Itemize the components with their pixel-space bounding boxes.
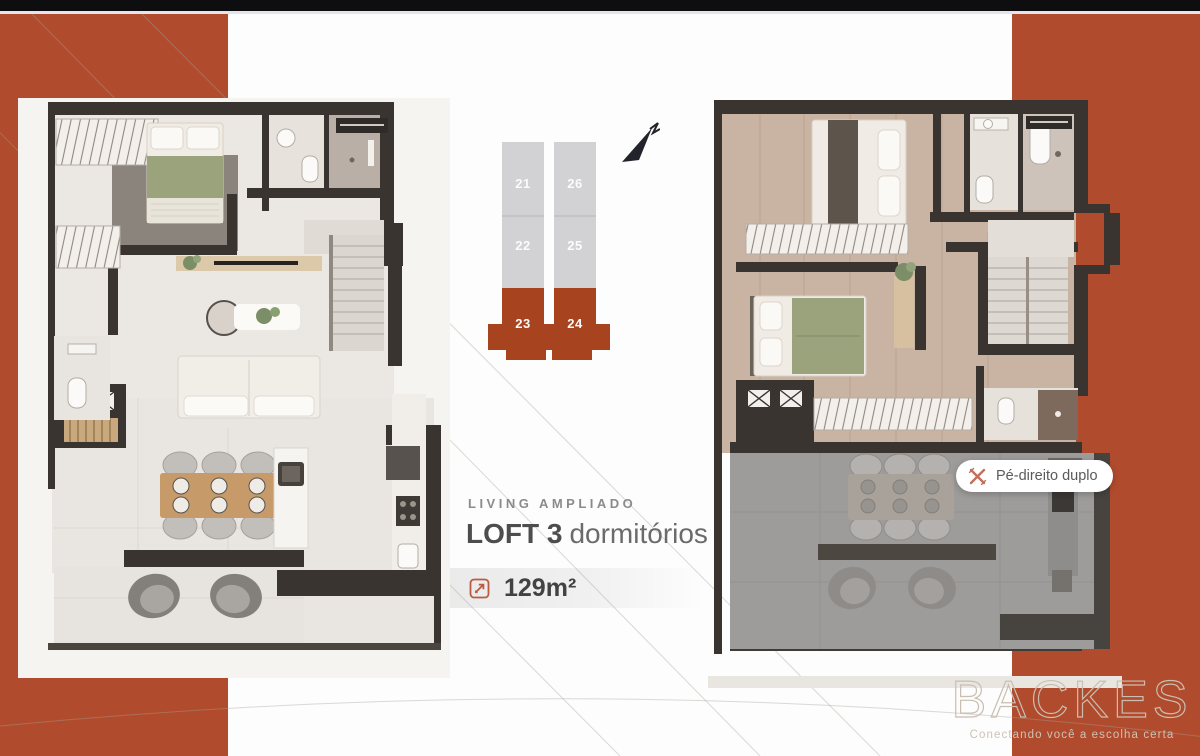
area-icon bbox=[468, 577, 491, 600]
bed-upper-2 bbox=[750, 296, 866, 376]
bed-upper-1 bbox=[812, 120, 906, 228]
stairs-upper bbox=[988, 220, 1074, 344]
dining-lower bbox=[160, 452, 278, 539]
unit-key-diagram: 21 22 23 26 25 24 bbox=[478, 138, 620, 360]
north-arrow-icon bbox=[614, 120, 660, 166]
double-height-icon bbox=[967, 466, 988, 487]
area-bar: 129m² bbox=[443, 568, 705, 608]
plan-title-rest: dormitórios bbox=[569, 518, 707, 549]
brand-tagline: Conectando você a escolha certa bbox=[948, 729, 1196, 741]
double-height-label: Pé-direito duplo bbox=[996, 468, 1098, 484]
unit-number: 26 bbox=[554, 176, 596, 191]
brand-logo: BACKES bbox=[948, 674, 1196, 726]
unit-number: 24 bbox=[554, 316, 596, 331]
area-value: 129m² bbox=[504, 574, 576, 603]
unit-number: 23 bbox=[502, 316, 544, 331]
unit-number: 21 bbox=[502, 176, 544, 191]
double-height-badge: Pé-direito duplo bbox=[956, 460, 1113, 492]
unit-number: 25 bbox=[554, 238, 596, 253]
floorplan-upper bbox=[700, 92, 1130, 692]
floorplan-lower bbox=[18, 98, 450, 678]
bed-lower bbox=[147, 123, 223, 223]
sofa-lower bbox=[178, 356, 320, 418]
plan-eyebrow: LIVING AMPLIADO bbox=[468, 496, 636, 511]
plan-title: LOFT 3dormitórios bbox=[466, 518, 708, 550]
wc-lower bbox=[54, 336, 110, 420]
brand-block: BACKES Conectando você a escolha certa bbox=[948, 674, 1196, 741]
page: 21 22 23 26 25 24 LIVING AMPLIADO LOFT 3… bbox=[0, 0, 1200, 756]
unit-key-shapes bbox=[478, 138, 620, 360]
elevator-core-upper bbox=[736, 380, 814, 442]
plan-title-strong: LOFT 3 bbox=[466, 518, 562, 549]
unit-number: 22 bbox=[502, 238, 544, 253]
top-black-bar bbox=[0, 0, 1200, 14]
